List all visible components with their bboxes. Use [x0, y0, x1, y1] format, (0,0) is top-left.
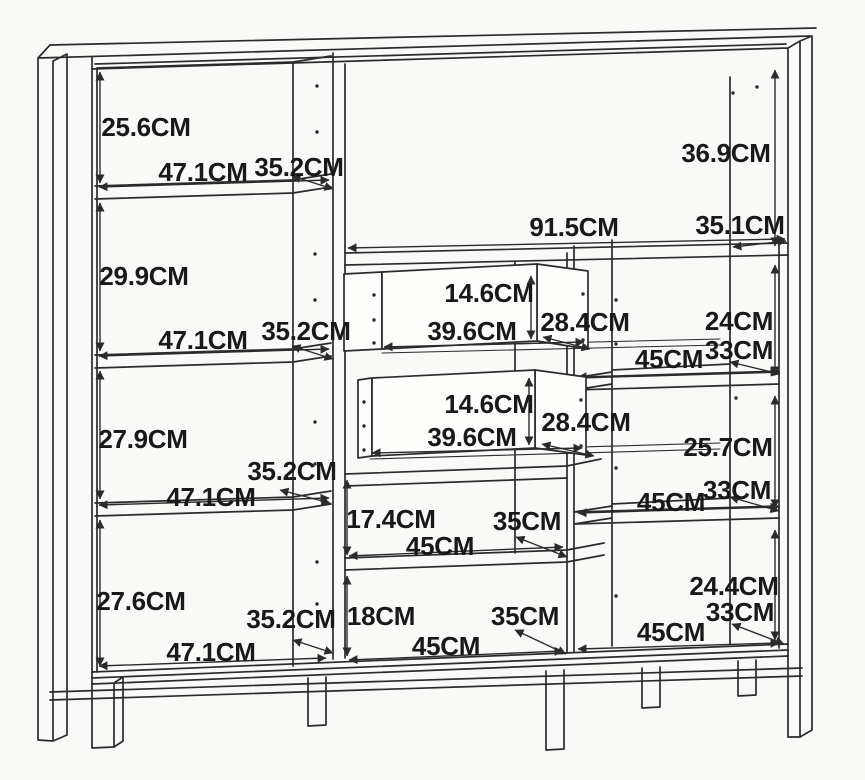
dim-label-drawer2-depth: 28.4CM: [541, 407, 630, 437]
dim-label-drawer1-depth: 28.4CM: [540, 307, 629, 337]
dim-label-left-row3-height: 27.9CM: [98, 424, 187, 454]
dim-label-mid-row1-depth: 35CM: [493, 506, 561, 536]
dim-label-left-row1-height: 25.6CM: [101, 112, 190, 142]
dim-label-left-row4-depth: 35.2CM: [246, 604, 335, 634]
dim-label-mid-row2-depth: 35CM: [491, 601, 559, 631]
cabinet-wireframe-svg: 25.6CM 47.1CM 35.2CM 36.9CM 91.5CM 35.1C…: [0, 0, 865, 780]
dim-label-right-row2-width: 45CM: [637, 487, 705, 517]
dim-label-mid-row2-width: 45CM: [412, 631, 480, 661]
dim-label-drawer2-height: 14.6CM: [444, 389, 533, 419]
dim-label-drawer2-width: 39.6CM: [427, 422, 516, 452]
dim-label-right-row2-depth: 33CM: [703, 475, 771, 505]
drawer2-left-side: [358, 378, 372, 458]
dim-label-top-open-width: 91.5CM: [529, 212, 618, 242]
dim-label-left-row4-width: 47.1CM: [166, 637, 255, 667]
dim-label-left-row1-depth: 35.2CM: [254, 152, 343, 182]
dim-label-left-row2-height: 29.9CM: [99, 261, 188, 291]
dim-label-mid-row2-height: 18CM: [347, 601, 415, 631]
dim-label-left-row4-height: 27.6CM: [96, 586, 185, 616]
dim-label-top-open-height: 36.9CM: [681, 138, 770, 168]
dim-label-right-row1-depth: 33CM: [705, 335, 773, 365]
dim-label-top-open-depth: 35.1CM: [695, 210, 784, 240]
dim-label-right-row3-width: 45CM: [637, 617, 705, 647]
dim-label-left-row2-width: 47.1CM: [158, 325, 247, 355]
dim-label-left-row2-depth: 35.2CM: [261, 316, 350, 346]
dim-label-drawer1-width: 39.6CM: [427, 316, 516, 346]
dim-label-right-row3-depth: 33CM: [706, 597, 774, 627]
dim-label-left-row3-depth: 35.2CM: [247, 456, 336, 486]
dim-label-mid-row1-height: 17.4CM: [346, 504, 435, 534]
dim-label-right-row1-width: 45CM: [635, 344, 703, 374]
furniture-dimension-diagram: 25.6CM 47.1CM 35.2CM 36.9CM 91.5CM 35.1C…: [0, 0, 865, 780]
dim-label-right-row2-height: 25.7CM: [683, 432, 772, 462]
dim-label-left-row1-width: 47.1CM: [158, 157, 247, 187]
dim-label-drawer1-height: 14.6CM: [444, 278, 533, 308]
dim-label-right-row1-height: 24CM: [705, 306, 773, 336]
dim-label-left-row3-width: 47.1CM: [166, 482, 255, 512]
dim-label-mid-row1-width: 45CM: [406, 531, 474, 561]
